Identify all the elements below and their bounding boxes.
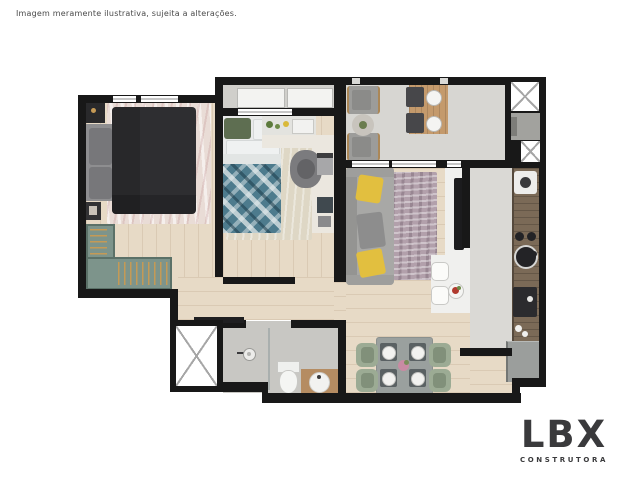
shaft-duct-3 <box>170 320 223 392</box>
wall-exterior-top <box>215 77 546 85</box>
cooktop-burner-small <box>527 232 536 241</box>
placemat <box>409 343 426 361</box>
ac-unit-1 <box>237 88 285 108</box>
door-mullion <box>389 160 392 168</box>
window-bedroom2 <box>238 109 292 115</box>
wall-kitchen-divider <box>462 160 470 248</box>
faucet-icon <box>527 296 533 302</box>
wall-kitchen-south <box>460 348 512 356</box>
wall-exterior-right <box>539 77 546 386</box>
bar-stool-2 <box>431 286 449 305</box>
chair-seat <box>361 373 374 388</box>
plate <box>382 372 396 386</box>
chair-cushion <box>352 137 371 157</box>
chair-cushion <box>352 90 371 110</box>
chair-seat <box>361 347 374 363</box>
place-setting-plate <box>426 116 442 132</box>
place-setting-plate <box>426 90 442 106</box>
bedroom2-desk-top <box>262 135 337 148</box>
glass-partition <box>268 328 270 390</box>
bedroom2-sheet-fold <box>221 154 281 164</box>
balcony-sliding-door <box>352 161 436 167</box>
window-master-1 <box>113 96 136 102</box>
bedroom2-duvet <box>221 158 281 233</box>
fruit-leaf <box>457 286 461 290</box>
plant-icon <box>359 121 367 129</box>
sofa-pillow-yellow-1 <box>355 174 384 204</box>
floor-hall-passage <box>334 282 346 320</box>
dining-chair <box>429 369 451 392</box>
shower-head <box>243 348 256 361</box>
elevator-door-band <box>511 117 517 136</box>
cooktop-knob <box>531 251 537 257</box>
centerpiece-leaf <box>404 360 409 365</box>
wall-master-bedroom2 <box>215 77 223 277</box>
coffee-machine <box>514 171 537 194</box>
plate <box>411 346 425 360</box>
sofa-back <box>346 167 357 285</box>
desk-laptop <box>317 153 333 175</box>
desk-notebook-1 <box>317 197 333 213</box>
shower-center <box>247 352 251 356</box>
plate <box>382 346 396 360</box>
chair-seat <box>433 347 446 363</box>
dining-chair <box>356 369 378 392</box>
wall-bedroom2-right <box>334 77 346 282</box>
balcony-dining-chair-1 <box>406 87 424 107</box>
master-pillow-2 <box>89 167 112 199</box>
bedroom2-shelf <box>262 116 316 135</box>
bathroom-door-opening <box>246 321 291 328</box>
soap-bottle <box>515 325 522 332</box>
balcony-armchair-1 <box>347 86 380 114</box>
placemat <box>380 369 397 387</box>
window-kitchen <box>447 161 461 167</box>
master-bed <box>112 107 196 214</box>
master-bed-throw <box>112 195 196 214</box>
balcony-armchair-2 <box>347 133 380 161</box>
art-canvas <box>89 206 97 215</box>
soap-bottle <box>522 331 528 337</box>
ac-unit-2 <box>287 88 333 108</box>
wall-bedroom2-closet <box>223 277 295 284</box>
fruit-bowl <box>448 283 464 299</box>
placemat <box>380 343 397 361</box>
balcony-side-table <box>352 114 374 136</box>
balcony-rail-notch <box>440 78 448 84</box>
closet-hangers <box>118 262 168 285</box>
dining-chair <box>429 343 451 367</box>
master-pillow-1 <box>89 128 112 165</box>
plant-icon <box>266 121 273 128</box>
floor-plan-page: Imagem meramente ilustrativa, sujeita a … <box>0 0 628 480</box>
shaft-duct-2 <box>521 141 540 162</box>
master-nightstand <box>86 102 105 123</box>
nightstand-decor <box>91 108 96 113</box>
chair-seat <box>297 159 315 179</box>
toilet-bowl <box>279 370 298 394</box>
desk-notebook-2 <box>318 216 331 227</box>
bar-stool-1 <box>431 262 449 281</box>
cooktop-pot <box>514 245 538 269</box>
decor-yellow <box>283 121 289 127</box>
shaft-duct-1 <box>511 82 539 111</box>
brand-logo: LBX CONSTRUTORA <box>520 416 608 464</box>
wall-exterior-bottom <box>262 393 521 403</box>
balcony-dining-chair-2 <box>406 113 424 133</box>
placemat <box>409 369 426 387</box>
table-centerpiece <box>398 360 409 371</box>
machine-dial <box>520 177 531 188</box>
disclaimer-text: Imagem meramente ilustrativa, sujeita a … <box>16 9 237 18</box>
chair-seat <box>433 373 446 388</box>
balcony-rail-notch <box>352 78 360 84</box>
master-art-frame <box>86 202 101 220</box>
plant-icon <box>275 124 280 129</box>
sofa-pillow-gray <box>356 212 386 250</box>
master-closet-horizontal <box>86 257 172 290</box>
bathroom-sink <box>309 372 330 393</box>
sofa-armrest <box>346 275 394 285</box>
dining-chair <box>356 343 378 367</box>
wall-bathroom-right <box>338 320 346 400</box>
bedroom2-pillow-green <box>224 118 251 139</box>
sofa-pillow-yellow-2 <box>356 248 386 278</box>
plate <box>411 372 425 386</box>
faucet-icon <box>317 375 321 379</box>
storage-box <box>292 119 314 134</box>
cooktop-burner-small <box>515 232 524 241</box>
window-master-2 <box>141 96 178 102</box>
elevator-box <box>511 113 540 140</box>
logo-brand-text: LBX <box>520 416 608 453</box>
logo-subtitle-text: CONSTRUTORA <box>520 456 608 464</box>
wall-exterior-left <box>78 95 86 298</box>
wall-master-bottom <box>78 289 178 298</box>
kitchen-sink <box>513 287 537 317</box>
